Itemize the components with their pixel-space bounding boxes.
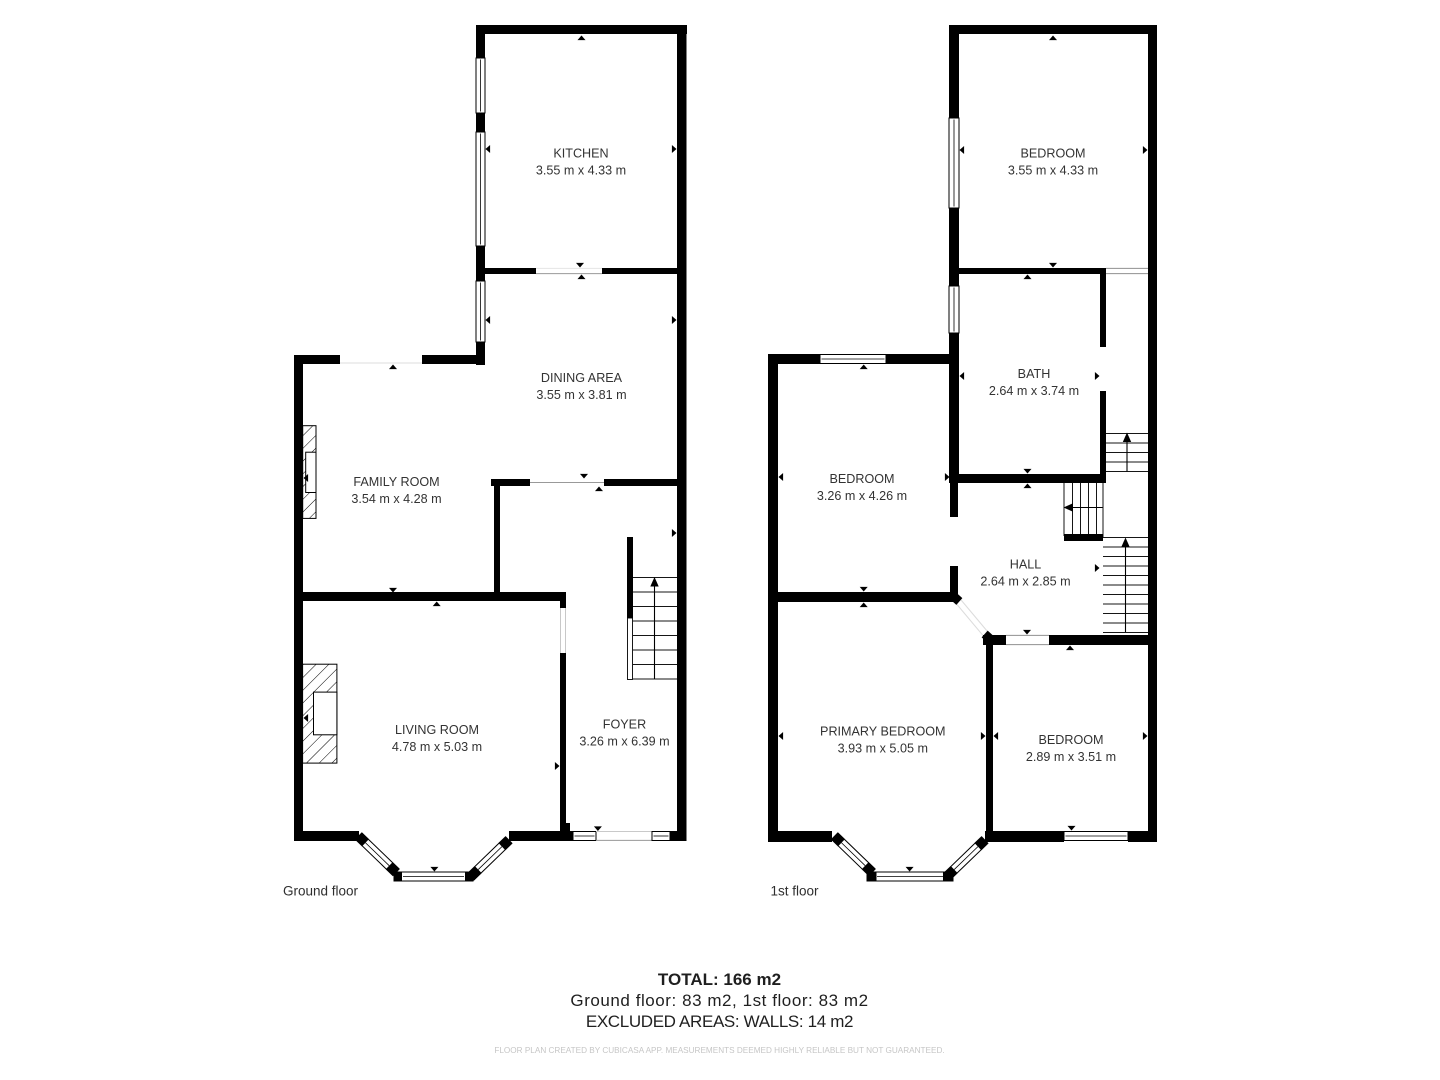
svg-text:LIVING ROOM: LIVING ROOM — [395, 723, 479, 737]
svg-text:3.55 m x 3.81 m: 3.55 m x 3.81 m — [536, 388, 626, 402]
svg-text:2.64 m x 3.74 m: 2.64 m x 3.74 m — [989, 384, 1079, 398]
svg-text:Ground floor: Ground floor — [283, 884, 359, 899]
svg-text:DINING AREA: DINING AREA — [541, 371, 623, 385]
svg-text:FOYER: FOYER — [603, 717, 646, 731]
svg-text:4.78 m x 5.03 m: 4.78 m x 5.03 m — [392, 740, 482, 754]
svg-text:FLOOR PLAN CREATED BY CUBICASA: FLOOR PLAN CREATED BY CUBICASA APP. MEAS… — [494, 1046, 944, 1055]
svg-text:2.89 m x 3.51 m: 2.89 m x 3.51 m — [1026, 750, 1116, 764]
svg-text:3.26 m x 4.26 m: 3.26 m x 4.26 m — [817, 489, 907, 503]
svg-text:TOTAL: 166 m2: TOTAL: 166 m2 — [658, 970, 781, 989]
svg-text:1st floor: 1st floor — [771, 884, 820, 899]
svg-text:BEDROOM: BEDROOM — [829, 472, 894, 486]
svg-text:3.93 m x 5.05 m: 3.93 m x 5.05 m — [838, 741, 928, 755]
svg-text:KITCHEN: KITCHEN — [553, 146, 608, 160]
svg-text:BATH: BATH — [1018, 367, 1051, 381]
svg-text:2.64 m x 2.85 m: 2.64 m x 2.85 m — [980, 574, 1070, 588]
svg-text:EXCLUDED AREAS: WALLS: 14 m2: EXCLUDED AREAS: WALLS: 14 m2 — [586, 1012, 853, 1031]
svg-text:3.55 m x 4.33 m: 3.55 m x 4.33 m — [1008, 163, 1098, 177]
svg-text:PRIMARY BEDROOM: PRIMARY BEDROOM — [820, 724, 946, 738]
svg-text:HALL: HALL — [1010, 557, 1042, 571]
svg-text:3.54 m x 4.28 m: 3.54 m x 4.28 m — [351, 492, 441, 506]
svg-text:3.26 m x 6.39 m: 3.26 m x 6.39 m — [579, 734, 669, 748]
svg-text:BEDROOM: BEDROOM — [1020, 146, 1085, 160]
svg-text:FAMILY ROOM: FAMILY ROOM — [353, 475, 439, 489]
svg-text:Ground floor: 83 m2, 1st floor: Ground floor: 83 m2, 1st floor: 83 m2 — [570, 991, 868, 1010]
svg-text:BEDROOM: BEDROOM — [1038, 733, 1103, 747]
svg-text:3.55 m x 4.33 m: 3.55 m x 4.33 m — [536, 163, 626, 177]
